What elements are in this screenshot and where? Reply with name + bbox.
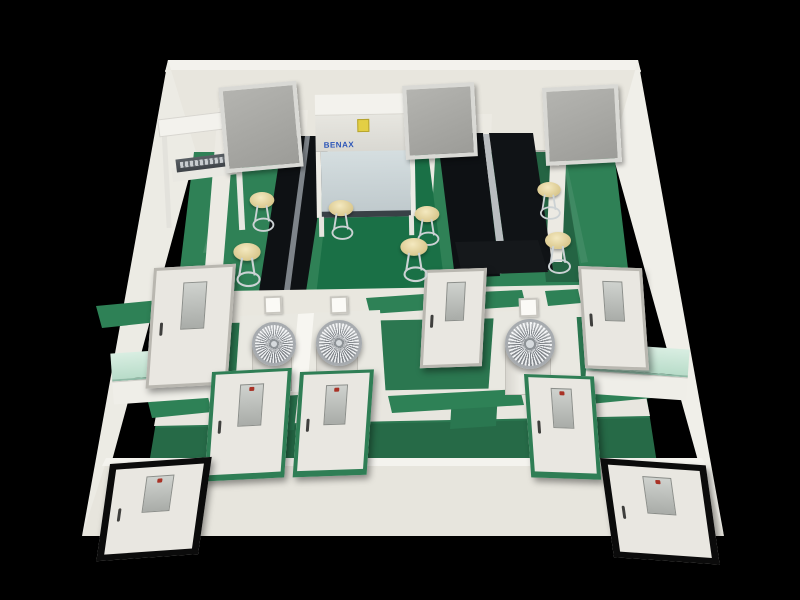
wall-panel-2 bbox=[330, 296, 349, 315]
instrument-keypad bbox=[180, 156, 230, 168]
door-lower-right bbox=[524, 374, 601, 480]
stool-seat bbox=[537, 182, 560, 197]
stool-seat bbox=[250, 192, 275, 208]
stool-seat bbox=[545, 232, 571, 249]
lab-stool-1 bbox=[250, 192, 275, 230]
stool-seat bbox=[415, 206, 440, 222]
stool-foot-ring bbox=[237, 271, 261, 287]
lab-objects-layer: BENAX bbox=[0, 0, 800, 600]
door-handle bbox=[159, 323, 163, 336]
stool-foot-ring bbox=[540, 206, 561, 220]
lab-stool-5 bbox=[400, 238, 427, 280]
stool-seat bbox=[233, 243, 260, 261]
door-mid-left bbox=[146, 264, 236, 389]
cabinet-front-panel: BENAX bbox=[315, 114, 415, 152]
door-handle bbox=[622, 505, 627, 518]
stool-seat bbox=[329, 200, 354, 216]
door-window-sign bbox=[249, 387, 254, 391]
lab-3d-render: BENAX bbox=[0, 0, 800, 600]
stool-seat bbox=[400, 238, 427, 256]
door-window-sign bbox=[655, 480, 661, 484]
lab-stool-7 bbox=[545, 232, 571, 272]
door-window bbox=[551, 388, 574, 428]
stool-foot-ring bbox=[332, 226, 354, 240]
stool-foot-ring bbox=[548, 259, 571, 274]
door-window bbox=[238, 383, 265, 426]
door-handle bbox=[117, 508, 122, 521]
door-window bbox=[324, 384, 349, 425]
door-handle bbox=[430, 315, 434, 328]
stool-foot-ring bbox=[253, 218, 275, 232]
door-lower-left-1 bbox=[204, 368, 292, 482]
door-window-sign bbox=[157, 479, 163, 483]
lab-stool-3 bbox=[329, 200, 354, 238]
turbine-unit-3 bbox=[505, 319, 555, 369]
door-window-sign bbox=[334, 387, 339, 391]
cabinet-leg bbox=[319, 217, 324, 237]
door-window bbox=[141, 475, 174, 513]
stool-foot-ring bbox=[404, 266, 428, 282]
lab-stool-6 bbox=[537, 182, 560, 218]
cabinet-leg bbox=[409, 215, 414, 235]
door-entry-left bbox=[96, 457, 211, 561]
door-mid-right bbox=[578, 266, 649, 371]
warning-sticker bbox=[357, 119, 369, 132]
door-window-sign bbox=[559, 392, 564, 396]
door-window bbox=[642, 476, 677, 515]
wall-panel-1 bbox=[264, 296, 283, 315]
door-window bbox=[602, 280, 624, 321]
door-window bbox=[445, 282, 466, 322]
turbine-unit-1 bbox=[252, 322, 296, 366]
wall-panel-3 bbox=[519, 298, 539, 318]
desk-frame bbox=[161, 126, 171, 228]
door-handle bbox=[537, 421, 541, 434]
lab-stool-2 bbox=[233, 243, 260, 285]
door-entry-right bbox=[600, 458, 720, 565]
door-handle bbox=[306, 419, 310, 432]
cabinet-top bbox=[315, 93, 414, 116]
door-handle bbox=[218, 421, 222, 434]
cabinet-brand-label: BENAX bbox=[324, 140, 355, 150]
door-lower-left-2 bbox=[293, 369, 374, 477]
back-window-right bbox=[542, 84, 622, 166]
door-window bbox=[180, 281, 208, 330]
back-window-left bbox=[218, 81, 303, 173]
door-handle bbox=[590, 314, 594, 327]
turbine-unit-2 bbox=[316, 320, 362, 366]
door-mid-center bbox=[420, 268, 487, 368]
back-window-middle bbox=[402, 82, 478, 160]
